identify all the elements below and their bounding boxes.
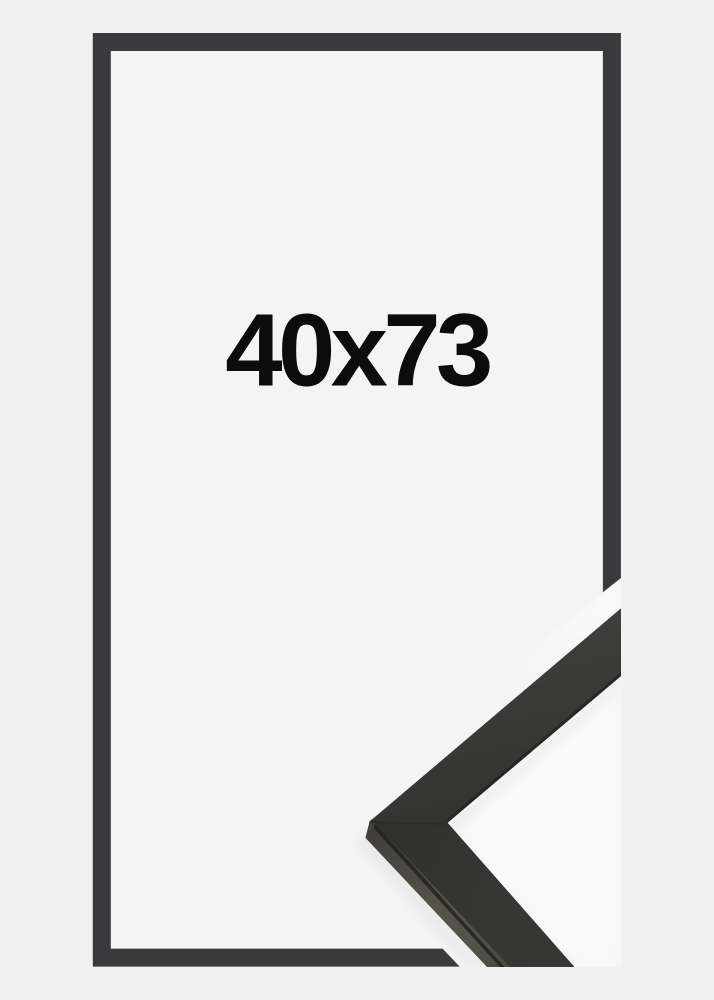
svg-text:40x73: 40x73	[225, 293, 490, 408]
